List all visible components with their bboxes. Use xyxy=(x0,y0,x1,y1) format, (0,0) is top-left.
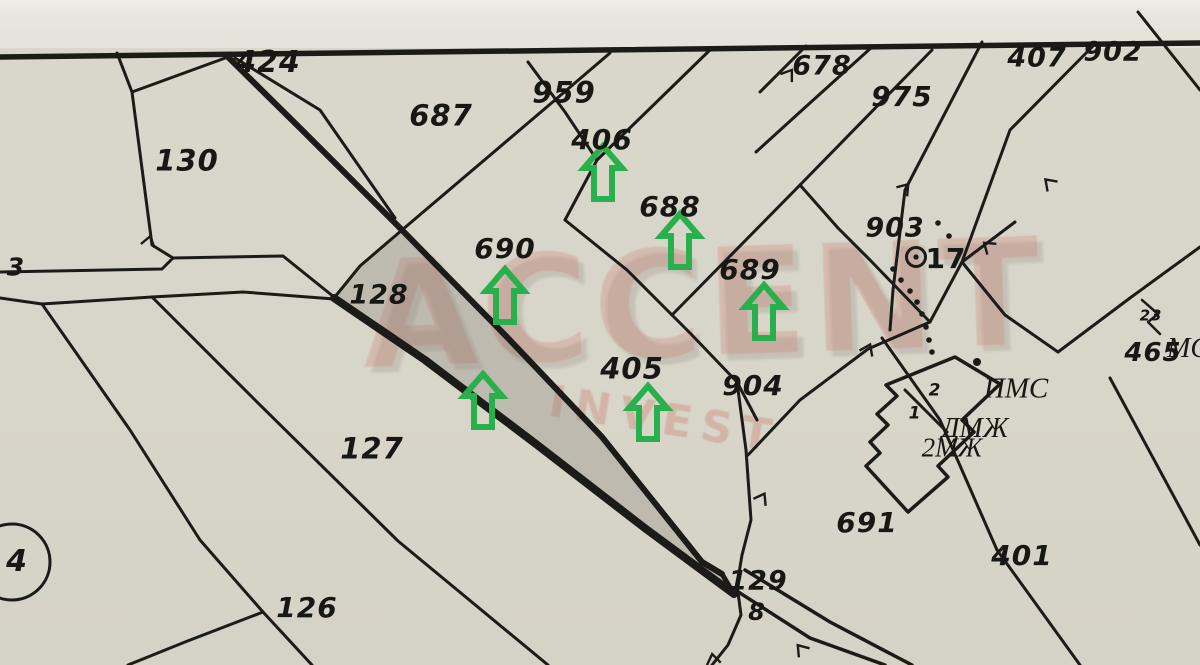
map-label-ПМС: ПМС xyxy=(984,375,1048,404)
map-label-902: 902 xyxy=(1083,39,1142,66)
map-label-128: 128 xyxy=(349,282,408,309)
map-label-2: 2 xyxy=(929,383,942,400)
map-label-689: 689 xyxy=(719,256,780,284)
map-label-401: 401 xyxy=(991,542,1052,570)
map-label-678: 678 xyxy=(792,53,851,80)
map-label-129: 129 xyxy=(728,568,787,595)
map-label-1: 1 xyxy=(909,406,922,423)
map-label-130: 130 xyxy=(155,147,219,176)
map-label-127: 127 xyxy=(340,435,404,464)
map-label-8: 8 xyxy=(748,600,766,624)
map-label-688: 688 xyxy=(639,193,700,221)
parcel-labels: 4246879594066789754079021306889031769068… xyxy=(0,0,1200,665)
map-label-2МЖ: 2МЖ xyxy=(922,435,983,462)
map-label-МС: МС xyxy=(1167,335,1200,363)
cadastral-map: ACCENT ACCENT INVEST xyxy=(0,0,1200,665)
map-label-17: 17 xyxy=(926,245,967,273)
map-label-903: 903 xyxy=(865,215,924,242)
map-label-975: 975 xyxy=(871,83,932,111)
map-label-407: 407 xyxy=(1007,45,1066,72)
map-label-405: 405 xyxy=(600,355,664,384)
map-label-126: 126 xyxy=(276,594,337,622)
map-label-691: 691 xyxy=(836,509,897,537)
map-label-23: 23 xyxy=(1140,309,1163,324)
map-label-4: 4 xyxy=(6,547,28,577)
map-label-690: 690 xyxy=(474,235,535,263)
map-label-959: 959 xyxy=(532,79,596,108)
map-label-406: 406 xyxy=(571,126,632,154)
map-label-424: 424 xyxy=(235,48,301,78)
map-label-3: 3 xyxy=(7,255,25,280)
map-label-904: 904 xyxy=(722,372,783,400)
map-label-687: 687 xyxy=(409,102,473,131)
